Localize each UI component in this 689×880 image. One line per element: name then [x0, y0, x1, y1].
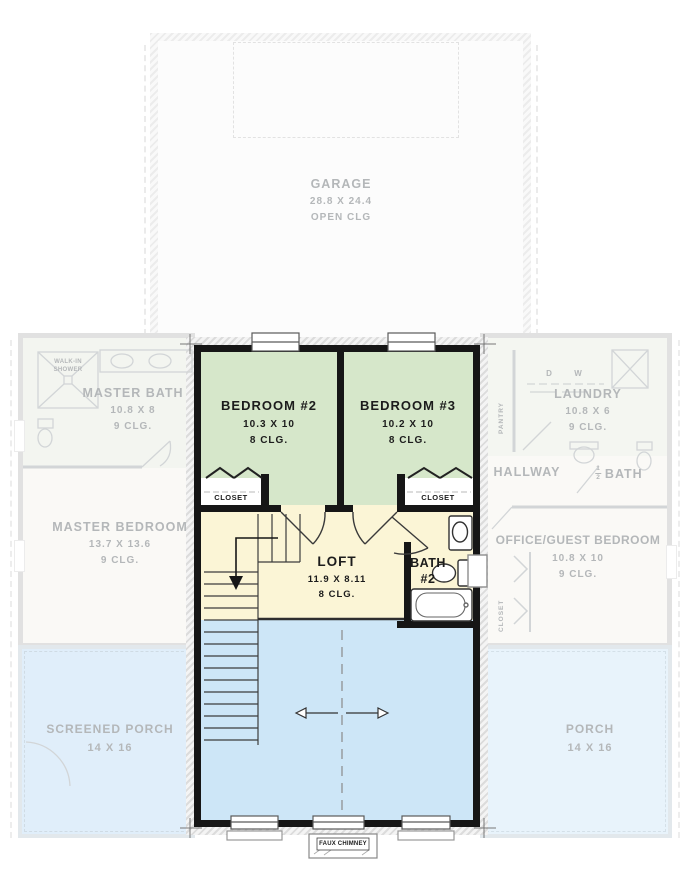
garage-overhang-left [144, 45, 146, 335]
right-wall-window [666, 545, 677, 579]
bath2-label: BATH #2 [410, 555, 446, 588]
bedroom2-label: BEDROOM #2 10.3 X 10 8 CLG. [221, 398, 317, 447]
pantry-label: PANTRY [498, 382, 505, 434]
master-bedroom-label: MASTER BEDROOM 13.7 X 13.6 9 CLG. [52, 519, 188, 567]
bedroom3-label: BEDROOM #3 10.2 X 10 8 CLG. [360, 398, 456, 447]
walk-in-shower-label: WALK-IN SHOWER [54, 359, 83, 375]
wall-segment [397, 505, 473, 512]
bedroom-divider-wall [337, 352, 344, 505]
office-guest-label: OFFICE/GUEST BEDROOM 10.8 X 10 9 CLG. [496, 533, 661, 581]
left-wall-window [14, 540, 25, 572]
overhang-left [10, 340, 12, 838]
half-bath-label: 1 2 BATH [595, 464, 642, 485]
bath2-bottom-wall [397, 621, 473, 628]
wall-segment [325, 505, 353, 512]
garage-overhang-right [536, 45, 538, 335]
closet-bedroom3-label: CLOSET [421, 493, 454, 503]
half-fraction: 1 2 [595, 466, 601, 482]
loft-label: LOFT 11.9 X 8.11 8 CLG. [308, 553, 367, 601]
closet2-post [261, 474, 269, 512]
left-wall-window [14, 420, 25, 452]
dryer-label: D [546, 369, 552, 379]
overhang-right [678, 340, 680, 838]
faux-chimney-label: FAUX CHIMNEY [319, 841, 367, 849]
garage-label: GARAGE 28.8 X 24.4 OPEN CLG [310, 176, 372, 224]
washer-label: W [574, 369, 582, 379]
screened-porch-label: SCREENED PORCH 14 X 16 [46, 722, 173, 755]
floor-plan: GARAGE 28.8 X 24.4 OPEN CLG WALK-IN SHOW… [0, 0, 689, 880]
closet3-post [397, 474, 405, 512]
master-bath-label: MASTER BATH 10.8 X 8 9 CLG. [82, 385, 183, 433]
closet-bedroom2-label: CLOSET [214, 493, 247, 503]
porch-label: PORCH 14 X 16 [566, 722, 614, 755]
wall-segment [201, 505, 281, 512]
hallway-label: HALLWAY [494, 464, 561, 480]
garage-attic-outline [233, 42, 459, 138]
office-closet-label: CLOSET [498, 580, 505, 632]
laundry-label: LAUNDRY 10.8 X 6 9 CLG. [554, 386, 622, 434]
